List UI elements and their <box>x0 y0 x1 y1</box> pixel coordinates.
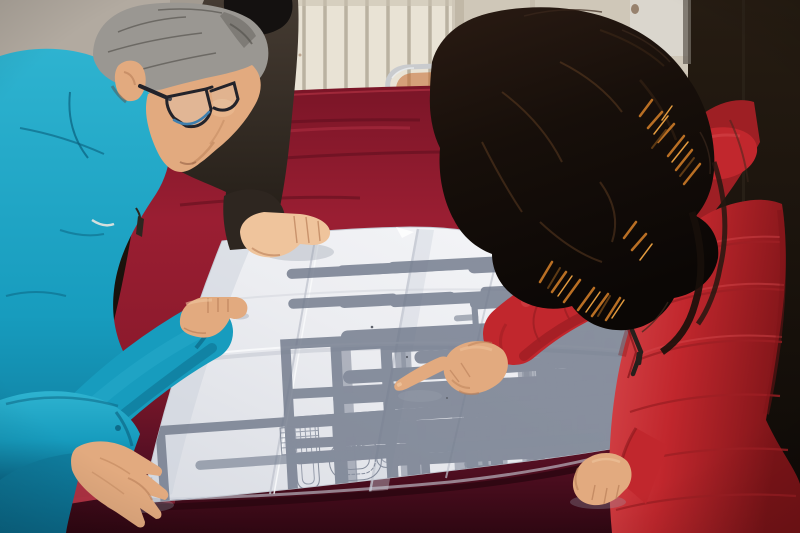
wall-corner-seam <box>683 0 691 64</box>
pointing-hand-shadow <box>398 390 442 402</box>
photo-workers-reviewing-blueprint <box>0 0 800 533</box>
scene-canvas <box>0 0 800 533</box>
